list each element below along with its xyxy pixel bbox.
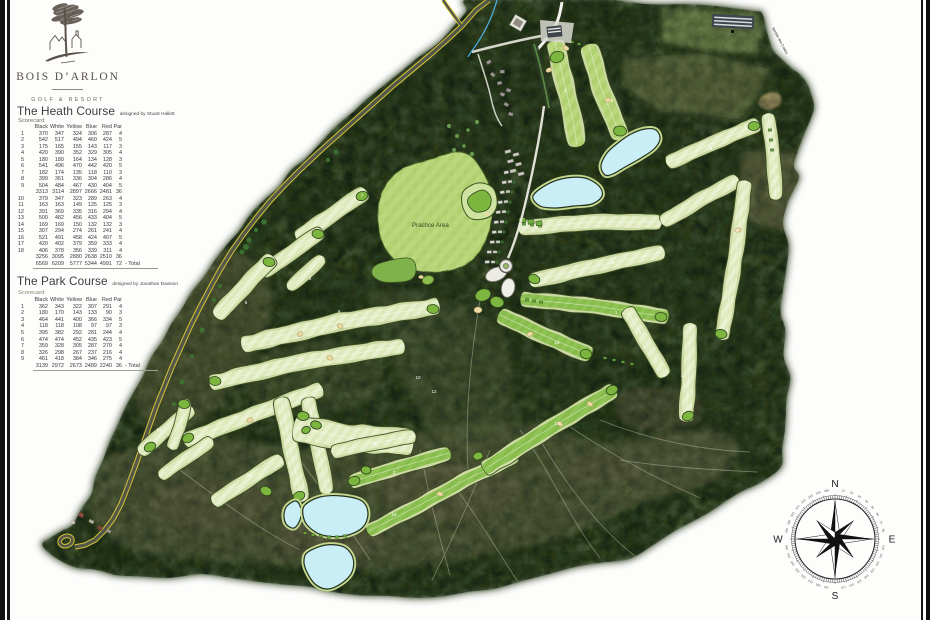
svg-text:1: 1 [681,373,684,378]
svg-text:300: 300 [790,511,796,518]
svg-text:3: 3 [564,88,567,93]
svg-text:290: 290 [786,519,792,525]
svg-text:2: 2 [393,470,396,475]
svg-text:12: 12 [431,389,437,394]
svg-text:14: 14 [156,427,162,432]
svg-text:160: 160 [848,582,854,588]
svg-text:50: 50 [870,505,875,510]
svg-text:16: 16 [391,512,397,517]
svg-text:6: 6 [611,98,614,103]
svg-text:E: E [889,535,896,546]
svg-text:5: 5 [181,425,184,430]
svg-text:330: 330 [807,493,814,499]
svg-text:70: 70 [879,520,884,525]
svg-text:N: N [831,479,838,490]
svg-text:100: 100 [881,545,886,551]
svg-text:240: 240 [789,560,795,567]
svg-text:140: 140 [863,573,870,579]
svg-text:60: 60 [875,512,880,517]
svg-text:18: 18 [554,340,560,345]
svg-text:20: 20 [849,491,854,496]
svg-text:200: 200 [815,582,821,588]
svg-text:210: 210 [807,578,814,584]
svg-text:30: 30 [857,494,862,499]
svg-text:11: 11 [372,441,377,446]
svg-text:10: 10 [841,488,845,493]
svg-text:4: 4 [236,415,239,420]
svg-text:17: 17 [554,421,560,426]
svg-text:310: 310 [794,504,800,511]
svg-text:1: 1 [615,310,618,315]
svg-text:9: 9 [338,309,341,314]
svg-text:40: 40 [864,499,869,504]
svg-text:260: 260 [784,544,789,550]
svg-text:250: 250 [786,552,792,558]
svg-text:W: W [773,535,783,546]
svg-text:280: 280 [784,527,789,533]
svg-text:5: 5 [710,146,713,151]
svg-text:10: 10 [415,375,421,380]
svg-text:4: 4 [736,228,739,233]
svg-text:110: 110 [878,553,884,559]
svg-text:13: 13 [298,357,304,362]
svg-text:10: 10 [246,473,252,478]
svg-text:150: 150 [856,578,863,584]
svg-text:80: 80 [881,529,886,533]
svg-text:190: 190 [823,585,829,590]
svg-text:340: 340 [815,490,821,496]
svg-text:9: 9 [612,260,615,265]
svg-text:7: 7 [361,193,364,198]
svg-text:8: 8 [309,276,312,281]
svg-text:170: 170 [840,585,846,590]
svg-text:Practice Area: Practice Area [412,222,449,229]
svg-text:S: S [832,591,839,602]
svg-text:320: 320 [800,498,807,504]
svg-text:350: 350 [824,488,830,493]
svg-text:120: 120 [874,560,880,567]
svg-text:6: 6 [245,300,248,305]
svg-text:230: 230 [794,567,800,574]
svg-text:220: 220 [800,573,807,579]
svg-text:130: 130 [869,567,875,574]
